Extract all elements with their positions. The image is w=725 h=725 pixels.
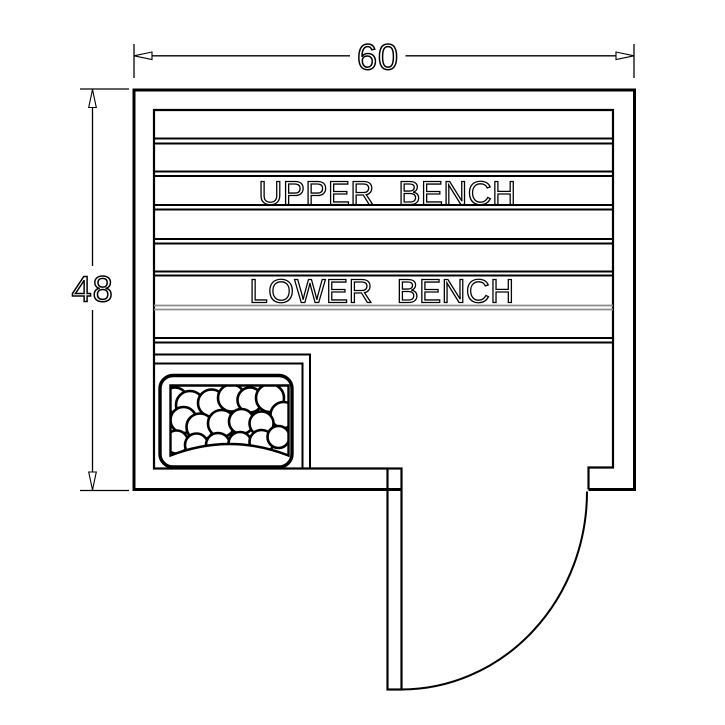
- door: [388, 469, 588, 690]
- arrowhead-left-icon: [134, 52, 152, 60]
- lower-bench-label: LOWER BENCH: [249, 273, 514, 310]
- sauna-heater: [160, 376, 297, 468]
- floor-plan-canvas: 60 48 UPPER BENCH LOWER BENCH: [0, 0, 725, 725]
- bench-board-lines: [154, 139, 613, 343]
- arrowhead-right-icon: [616, 52, 634, 60]
- heater-rocks: [163, 384, 297, 457]
- sauna-plan-drawing: 60 48 UPPER BENCH LOWER BENCH: [0, 0, 725, 725]
- door-swing-arc: [402, 492, 588, 690]
- arrowhead-up-icon: [89, 90, 97, 108]
- arrowhead-down-icon: [89, 472, 97, 490]
- dimension-top-value: 60: [357, 37, 399, 78]
- door-leaf: [388, 469, 402, 690]
- rock: [268, 426, 290, 448]
- dimension-left-value: 48: [72, 269, 114, 310]
- upper-bench-label: UPPER BENCH: [259, 175, 517, 212]
